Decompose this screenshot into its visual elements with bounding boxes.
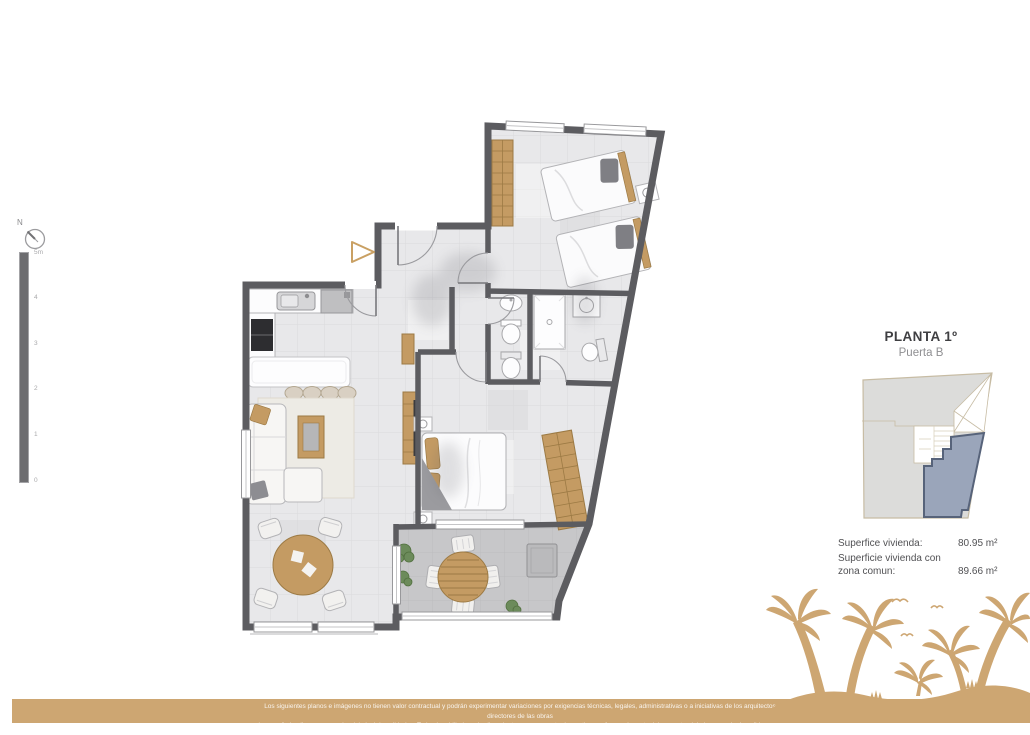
compass-icon: N	[10, 212, 50, 252]
scale-bar: 5m 4 3 2 1 0	[19, 252, 53, 481]
chaise	[284, 468, 322, 502]
location-minimap	[857, 369, 1003, 523]
hall-furniture	[402, 334, 416, 464]
scale-tick: 0	[34, 478, 38, 484]
palm-silhouette	[766, 589, 1030, 723]
area-info: Superfice vivienda: 80.95 m² Superficie …	[838, 537, 1008, 580]
entrance-marker-icon	[352, 242, 374, 262]
terrace-table	[438, 552, 488, 602]
compass: N	[10, 212, 50, 252]
disclaimer: Los siguientes planos e imágenes no tien…	[255, 702, 785, 735]
info-panel-header: PLANTA 1º Puerta B	[836, 329, 1006, 359]
area-label: Superfice vivienda:	[838, 537, 956, 550]
area-value: 89.66 m²	[958, 565, 1008, 578]
dining-table	[273, 535, 333, 595]
area-row: Superfice vivienda: 80.95 m²	[838, 537, 1008, 550]
side-table	[527, 544, 557, 577]
disclaimer-line: Los siguientes planos e imágenes no tien…	[255, 702, 785, 721]
disclaimer-line: sin que ello implique menoscabo del nive…	[255, 721, 785, 735]
compass-north-label: N	[17, 218, 23, 227]
scale-tick: 2	[34, 386, 38, 392]
scale-tick: 4	[34, 295, 38, 301]
palm-trees-graphic	[766, 586, 1030, 723]
shower	[534, 295, 565, 349]
area-label: Superficie vivienda con zona comun:	[838, 552, 956, 578]
toilet	[502, 358, 520, 379]
area-value: 80.95 m²	[958, 537, 1008, 550]
scale-tick: 5m	[34, 250, 43, 256]
plan-subtitle: Puerta B	[836, 347, 1006, 359]
bidet	[502, 324, 520, 344]
area-row: Superficie vivienda con zona comun: 89.6…	[838, 552, 1008, 578]
scale-bar-line	[19, 252, 29, 483]
plan-title: PLANTA 1º	[836, 329, 1006, 344]
scale-tick: 3	[34, 341, 38, 347]
scale-tick: 1	[34, 432, 38, 438]
floorplan-page: N 5m 4 3 2 1 0 PLANTA 1º Puerta B Superf…	[0, 0, 1030, 735]
